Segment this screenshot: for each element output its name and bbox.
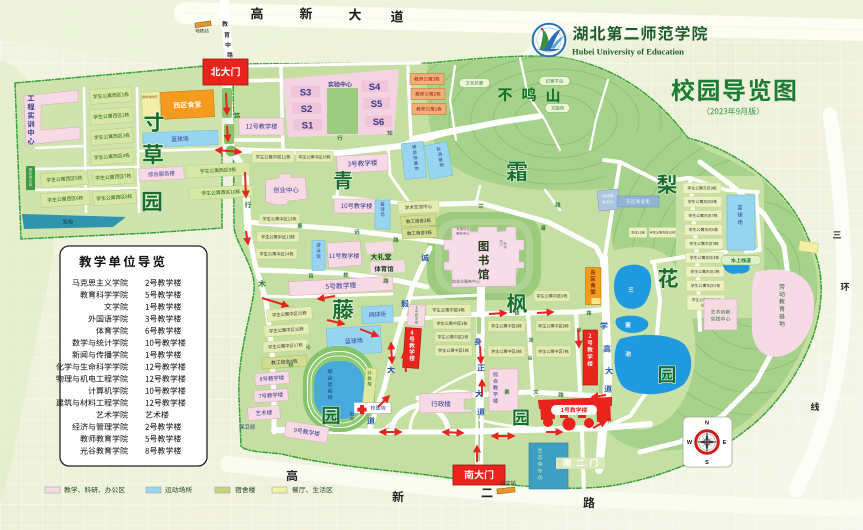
svg-text:S: S: [705, 460, 709, 466]
svg-text:S1: S1: [302, 121, 314, 132]
svg-text:S4: S4: [369, 82, 381, 93]
svg-text:S3: S3: [300, 88, 312, 99]
svg-text:N: N: [705, 421, 709, 427]
svg-text:Hubei University of Education: Hubei University of Education: [572, 47, 684, 57]
svg-text:W: W: [687, 440, 693, 446]
svg-text:S6: S6: [373, 117, 385, 128]
svg-text:S2: S2: [301, 104, 313, 115]
svg-text:S5: S5: [371, 99, 383, 110]
svg-text:E: E: [723, 440, 727, 446]
